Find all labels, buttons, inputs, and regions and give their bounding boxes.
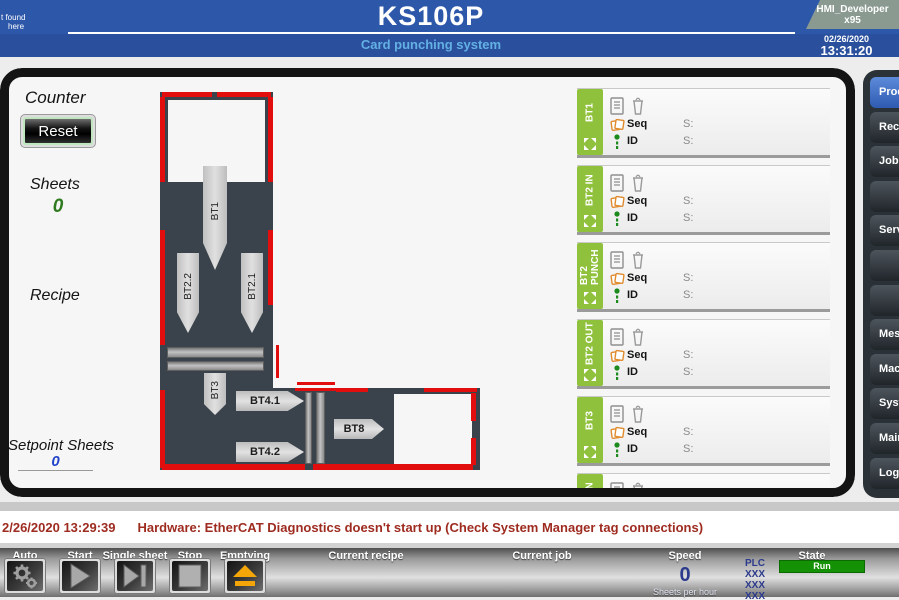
red-segment: [217, 92, 271, 97]
seq-state: S:: [683, 272, 693, 284]
expand-icon[interactable]: [583, 214, 597, 228]
red-segment: [471, 438, 476, 465]
status-panel-bt2-in: BT2 IN Seq S: ID S:: [577, 165, 830, 235]
main-screen-area: Counter Reset Sheets 0 Recipe Setpoint S…: [0, 68, 855, 497]
nav-service[interactable]: Servi: [870, 215, 899, 246]
punch-roller: [167, 361, 264, 371]
transfer-roller: [316, 392, 325, 464]
status-panel-bt3: BT3 Seq S: ID S:: [577, 396, 830, 466]
red-segment: [297, 382, 335, 385]
id-label: ID: [627, 366, 638, 378]
panel-tab[interactable]: BT2 IN: [577, 166, 603, 232]
belt-label-bt2-1: BT2.1: [247, 273, 258, 314]
red-segment: [162, 92, 212, 97]
belt-label-bt1: BT1: [210, 202, 221, 234]
red-segment: [276, 345, 279, 378]
play-icon: [68, 563, 92, 589]
red-segment: [162, 464, 305, 470]
id-state: S:: [683, 289, 693, 301]
list-icon[interactable]: [608, 173, 626, 193]
seq-label: Seq: [627, 195, 647, 207]
sequence-cards-icon: [610, 348, 625, 363]
header-time: 13:31:20: [799, 43, 894, 58]
red-segment: [295, 388, 337, 391]
list-icon[interactable]: [608, 404, 626, 424]
seq-state: S:: [683, 349, 693, 361]
belt-label-bt3: BT3: [210, 381, 221, 407]
id-tag-icon: [613, 288, 621, 304]
panel-tab[interactable]: BT2 OUT: [577, 320, 603, 386]
status-panel-bt4-in: BT4 IN Seq S: ID S:: [577, 473, 830, 497]
nav-production[interactable]: Prod: [870, 77, 899, 108]
expand-icon[interactable]: [583, 368, 597, 382]
plc-value-3: XXX: [745, 591, 775, 600]
seq-state: S:: [683, 426, 693, 438]
expand-icon[interactable]: [583, 445, 597, 459]
divider-band: [0, 502, 899, 511]
sheets-value: 0: [40, 196, 76, 218]
panel-tab-label: BT1: [577, 91, 603, 135]
stop-icon: [178, 564, 202, 588]
list-icon[interactable]: [608, 481, 626, 497]
trash-icon[interactable]: [629, 172, 647, 193]
outfeed-opening: [394, 394, 472, 465]
page-subtitle: Card punching system: [0, 37, 862, 52]
id-label: ID: [627, 135, 638, 147]
punch-roller: [167, 347, 264, 358]
page-title: KS106P: [0, 1, 862, 32]
emptying-button[interactable]: [224, 558, 266, 594]
nav-messages[interactable]: Mess: [870, 319, 899, 350]
setpoint-sheets-input[interactable]: 0: [18, 453, 93, 471]
nav-blank-2: [870, 250, 899, 281]
seq-label: Seq: [627, 118, 647, 130]
setpoint-sheets-label: Setpoint Sheets: [8, 437, 114, 454]
start-button[interactable]: [59, 558, 101, 594]
current-recipe-label: Current recipe: [306, 550, 426, 562]
panel-tab-label: BT3: [577, 399, 603, 443]
stop-button[interactable]: [169, 558, 211, 594]
trash-icon[interactable]: [629, 249, 647, 270]
id-label: ID: [627, 443, 638, 455]
user-badge[interactable]: HMI_Developer x95: [806, 0, 899, 29]
nav-machine[interactable]: Mach: [870, 354, 899, 385]
panel-tab-label: BT2 OUT: [577, 322, 603, 366]
red-segment: [268, 230, 273, 305]
panel-tab[interactable]: BT2 PUNCH: [577, 243, 603, 309]
red-segment: [313, 464, 473, 470]
reset-button-frame: Reset: [20, 114, 96, 148]
panel-tab[interactable]: BT1: [577, 89, 603, 155]
nav-system[interactable]: Syste: [870, 388, 899, 419]
nav-maintenance[interactable]: Main: [870, 423, 899, 454]
nav-blank-3: [870, 285, 899, 316]
red-segment: [160, 390, 165, 468]
id-state: S:: [683, 212, 693, 224]
speed-value: 0: [645, 564, 725, 587]
panel-tab-label: BT2 IN: [577, 168, 603, 212]
red-segment: [160, 97, 165, 182]
seq-state: S:: [683, 195, 693, 207]
header-divider-line: [68, 32, 795, 34]
single-sheet-button[interactable]: [114, 558, 156, 594]
plc-label: PLC: [745, 558, 775, 569]
alarm-line[interactable]: 2/26/2020 13:29:39 Hardware: EtherCAT Di…: [0, 511, 899, 543]
panel-tab-label: BT2 PUNCH: [577, 245, 603, 289]
plc-value-1: XXX: [745, 569, 775, 580]
seq-label: Seq: [627, 349, 647, 361]
hmi-screen: t found here KS106P Card punching system…: [0, 0, 899, 600]
belt-label-bt2-2: BT2.2: [183, 273, 194, 314]
trash-icon[interactable]: [629, 326, 647, 347]
panel-tab[interactable]: BT3: [577, 397, 603, 463]
nav-log[interactable]: Log: [870, 458, 899, 489]
id-label: ID: [627, 289, 638, 301]
user-badge-station: x95: [806, 15, 899, 26]
current-job-label: Current job: [482, 550, 602, 562]
seq-label: Seq: [627, 426, 647, 438]
trash-icon[interactable]: [629, 403, 647, 424]
id-state: S:: [683, 366, 693, 378]
state-run-indicator: Run: [779, 560, 865, 573]
sequence-cards-icon: [610, 194, 625, 209]
panel-tab-label: BT4 IN: [577, 476, 603, 497]
speed-label: Speed: [645, 550, 725, 562]
sequence-cards-icon: [610, 117, 625, 132]
expand-icon[interactable]: [583, 137, 597, 151]
id-state: S:: [683, 443, 693, 455]
alarm-timestamp: 2/26/2020 13:29:39: [2, 520, 115, 535]
transfer-roller: [305, 392, 312, 464]
sheets-label: Sheets: [30, 176, 80, 194]
recipe-label: Recipe: [30, 287, 80, 305]
bottom-toolbar: Auto Start Single sheet Stop Emptying: [0, 548, 899, 597]
red-segment: [336, 388, 368, 392]
red-segment: [268, 97, 273, 182]
list-icon[interactable]: [608, 250, 626, 270]
nav-recipes[interactable]: Recip: [870, 112, 899, 143]
trash-icon[interactable]: [629, 480, 647, 497]
red-segment: [424, 388, 477, 392]
seq-label: Seq: [627, 272, 647, 284]
trash-icon[interactable]: [629, 95, 647, 116]
status-panel-bt2-punch: BT2 PUNCH Seq S: ID S:: [577, 242, 830, 312]
reset-button[interactable]: Reset: [23, 117, 93, 145]
counter-label: Counter: [25, 88, 85, 108]
alarm-message: Hardware: EtherCAT Diagnostics doesn't s…: [137, 520, 703, 535]
sequence-cards-icon: [610, 425, 625, 440]
list-icon[interactable]: [608, 327, 626, 347]
id-tag-icon: [613, 442, 621, 458]
nav-job[interactable]: Job a: [870, 146, 899, 177]
nav-blank-1: [870, 181, 899, 212]
status-panel-bt2-out: BT2 OUT Seq S: ID S:: [577, 319, 830, 389]
auto-button[interactable]: [4, 558, 46, 594]
step-icon: [122, 563, 148, 589]
gears-icon: [11, 562, 39, 590]
expand-icon[interactable]: [583, 291, 597, 305]
seq-state: S:: [683, 118, 693, 130]
sequence-cards-icon: [610, 271, 625, 286]
red-segment: [160, 230, 165, 345]
id-label: ID: [627, 212, 638, 224]
id-state: S:: [683, 135, 693, 147]
user-badge-name: HMI_Developer: [806, 4, 899, 15]
id-tag-icon: [613, 365, 621, 381]
speed-unit: Sheets per hour: [630, 587, 740, 597]
id-tag-icon: [613, 134, 621, 150]
eject-icon: [232, 564, 258, 588]
status-panel-bt1: BT1 Seq S: ID S:: [577, 88, 830, 158]
list-icon[interactable]: [608, 96, 626, 116]
id-tag-icon: [613, 211, 621, 227]
header-bar: t found here KS106P Card punching system…: [0, 0, 899, 57]
red-segment: [471, 393, 476, 421]
plc-value-2: XXX: [745, 580, 775, 591]
panel-tab[interactable]: BT4 IN: [577, 474, 603, 497]
